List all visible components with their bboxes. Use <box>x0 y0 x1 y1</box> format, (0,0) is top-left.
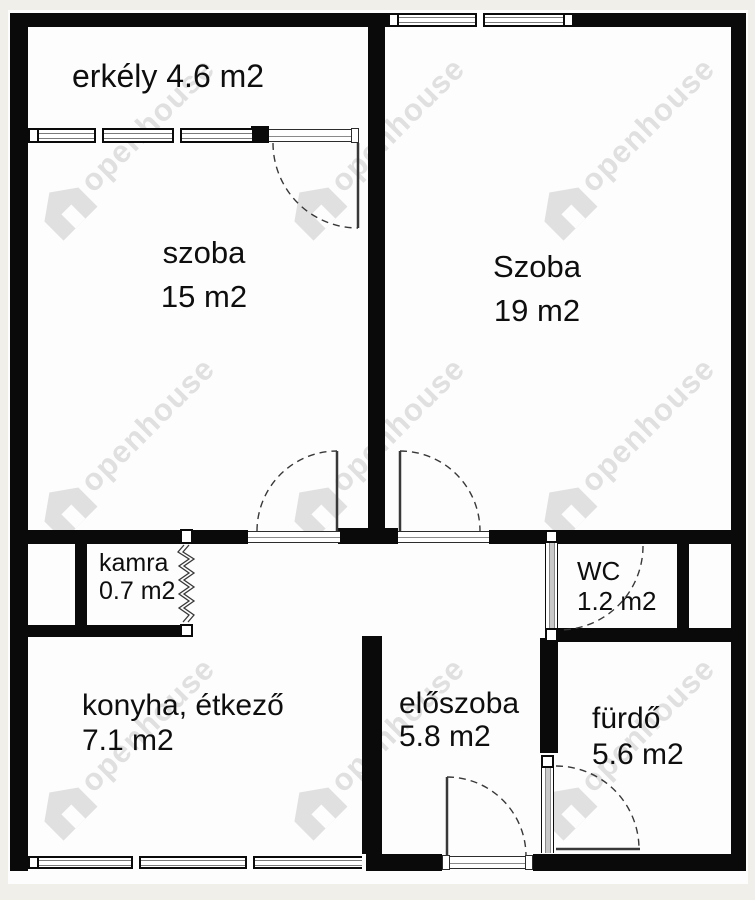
room-name: szoba <box>161 231 247 275</box>
room-area: 15 m2 <box>161 275 247 319</box>
room-label-szoba19: Szoba 19 m2 <box>493 245 581 333</box>
room-label-erkely: erkély 4.6 m2 <box>72 54 264 98</box>
room-label-konyha: konyha, étkező 7.1 m2 <box>82 688 284 758</box>
room-area: 5.8 m2 <box>399 720 519 753</box>
room-label-furdo: fürdő 5.6 m2 <box>592 701 684 773</box>
room-name: erkély <box>72 58 157 94</box>
room-name: Szoba <box>493 245 581 289</box>
room-label-wc: WC 1.2 m2 <box>577 556 657 616</box>
room-name: konyha, étkező <box>82 688 284 723</box>
room-name: előszoba <box>399 687 519 720</box>
room-area: 4.6 m2 <box>166 58 264 94</box>
room-area: 5.6 m2 <box>592 737 684 773</box>
room-name: fürdő <box>592 701 684 737</box>
room-label-eloszoba: előszoba 5.8 m2 <box>399 687 519 753</box>
room-area: 7.1 m2 <box>82 723 284 758</box>
room-label-kamra: kamra 0.7 m2 <box>99 549 175 605</box>
room-label-szoba15: szoba 15 m2 <box>161 231 247 319</box>
room-name: kamra <box>99 549 175 577</box>
room-area: 19 m2 <box>493 289 581 333</box>
floor-plan: openhouse openhouse openhouse openhouse … <box>0 0 755 900</box>
room-name: WC <box>577 556 657 586</box>
room-area: 0.7 m2 <box>99 577 175 605</box>
room-area: 1.2 m2 <box>577 586 657 616</box>
